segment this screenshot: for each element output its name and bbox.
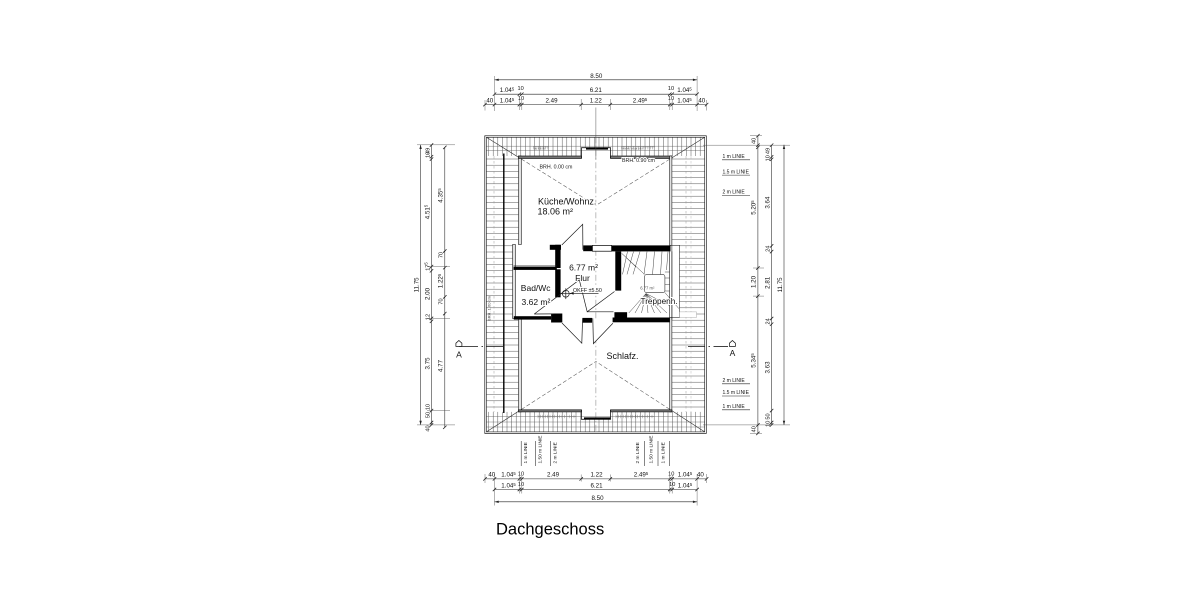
svg-text:OKFF ±5.50: OKFF ±5.50 <box>573 288 602 294</box>
svg-text:10: 10 <box>668 86 674 92</box>
svg-text:50: 50 <box>425 412 431 418</box>
svg-text:2 m LINIE: 2 m LINIE <box>552 442 558 463</box>
svg-text:24: 24 <box>765 246 771 252</box>
svg-text:1.20: 1.20 <box>751 275 758 288</box>
svg-text:6.21: 6.21 <box>590 482 603 489</box>
svg-text:12: 12 <box>425 314 431 320</box>
svg-text:1.22: 1.22 <box>590 472 603 479</box>
svg-text:10: 10 <box>425 152 431 158</box>
svg-text:50: 50 <box>765 413 771 419</box>
svg-text:1.5 m LINIE: 1.5 m LINIE <box>723 169 750 175</box>
svg-text:18.06 m²: 18.06 m² <box>538 207 574 217</box>
svg-text:1.50 m LINIE: 1.50 m LINIE <box>649 436 655 464</box>
svg-text:2.49: 2.49 <box>545 97 558 104</box>
svg-text:BRH. 0.90 cm: BRH. 0.90 cm <box>622 158 656 164</box>
svg-text:6.77 m²: 6.77 m² <box>640 286 655 291</box>
svg-text:10: 10 <box>668 96 674 102</box>
svg-text:1.22: 1.22 <box>590 97 603 104</box>
svg-text:10: 10 <box>425 404 431 410</box>
svg-text:3.63: 3.63 <box>764 361 771 374</box>
svg-text:ao ao at: ao ao at <box>534 146 545 150</box>
svg-text:24: 24 <box>765 318 771 324</box>
svg-text:2 m LINIE: 2 m LINIE <box>635 442 641 463</box>
svg-text:70: 70 <box>439 252 445 258</box>
svg-text:40: 40 <box>425 425 431 431</box>
svg-text:40: 40 <box>697 472 704 479</box>
svg-text:40: 40 <box>752 426 758 432</box>
svg-text:A: A <box>456 350 462 360</box>
svg-text:11.75: 11.75 <box>413 277 420 293</box>
svg-text:Flur: Flur <box>575 273 590 283</box>
svg-text:2.00: 2.00 <box>424 287 431 300</box>
svg-text:6.21: 6.21 <box>590 87 603 94</box>
svg-text:1 m LINIE: 1 m LINIE <box>523 442 529 463</box>
svg-text:Bad/Wc: Bad/Wc <box>521 283 552 293</box>
svg-text:A: A <box>730 348 736 358</box>
svg-text:Schlafz.: Schlafz. <box>607 351 639 361</box>
svg-text:2 m LINIE: 2 m LINIE <box>723 378 746 384</box>
svg-text:8.50: 8.50 <box>591 495 604 502</box>
svg-text:70: 70 <box>439 298 445 304</box>
svg-text:1.50 m LINIE: 1.50 m LINIE <box>538 436 544 464</box>
svg-text:10: 10 <box>518 482 524 488</box>
svg-text:40: 40 <box>486 97 493 104</box>
svg-text:3.62 m²: 3.62 m² <box>522 297 551 307</box>
svg-text:3.64: 3.64 <box>764 196 771 209</box>
svg-text:1 m LINIE: 1 m LINIE <box>723 154 746 160</box>
svg-text:40: 40 <box>752 138 758 144</box>
svg-text:1 m LINIE: 1 m LINIE <box>723 404 746 410</box>
svg-text:2.81: 2.81 <box>764 276 771 289</box>
svg-text:1.5 m LINIE: 1.5 m LINIE <box>723 390 750 396</box>
svg-text:10: 10 <box>518 472 524 478</box>
svg-text:BRH. 0.00 cm: BRH. 0.00 cm <box>540 164 574 170</box>
svg-text:10: 10 <box>765 155 771 161</box>
svg-text:11.75: 11.75 <box>777 277 784 293</box>
svg-text:2 m LINIE: 2 m LINIE <box>723 190 746 196</box>
svg-text:Dachgeschoss: Dachgeschoss <box>496 521 604 539</box>
svg-text:1 m LINIE: 1 m LINIE <box>660 442 666 463</box>
svg-text:10: 10 <box>668 472 674 478</box>
svg-text:10: 10 <box>518 96 524 102</box>
svg-text:lea ec ecoa pa t: lea ec ecoa pa t <box>622 146 643 150</box>
svg-text:49: 49 <box>765 148 771 154</box>
svg-text:8.50: 8.50 <box>590 73 603 80</box>
svg-text:2.49: 2.49 <box>547 472 560 479</box>
svg-text:Treppenh.: Treppenh. <box>641 297 678 306</box>
svg-text:10: 10 <box>517 86 523 92</box>
svg-text:BRH. 1.60 cm: BRH. 1.60 cm <box>487 295 492 321</box>
svg-text:10: 10 <box>765 421 771 427</box>
svg-text:6.77 m²: 6.77 m² <box>569 262 598 272</box>
svg-text:4.77: 4.77 <box>438 359 445 372</box>
svg-text:3.75: 3.75 <box>424 357 431 370</box>
svg-text:Küche/Wohnz.: Küche/Wohnz. <box>538 197 596 207</box>
svg-text:40: 40 <box>698 97 705 104</box>
